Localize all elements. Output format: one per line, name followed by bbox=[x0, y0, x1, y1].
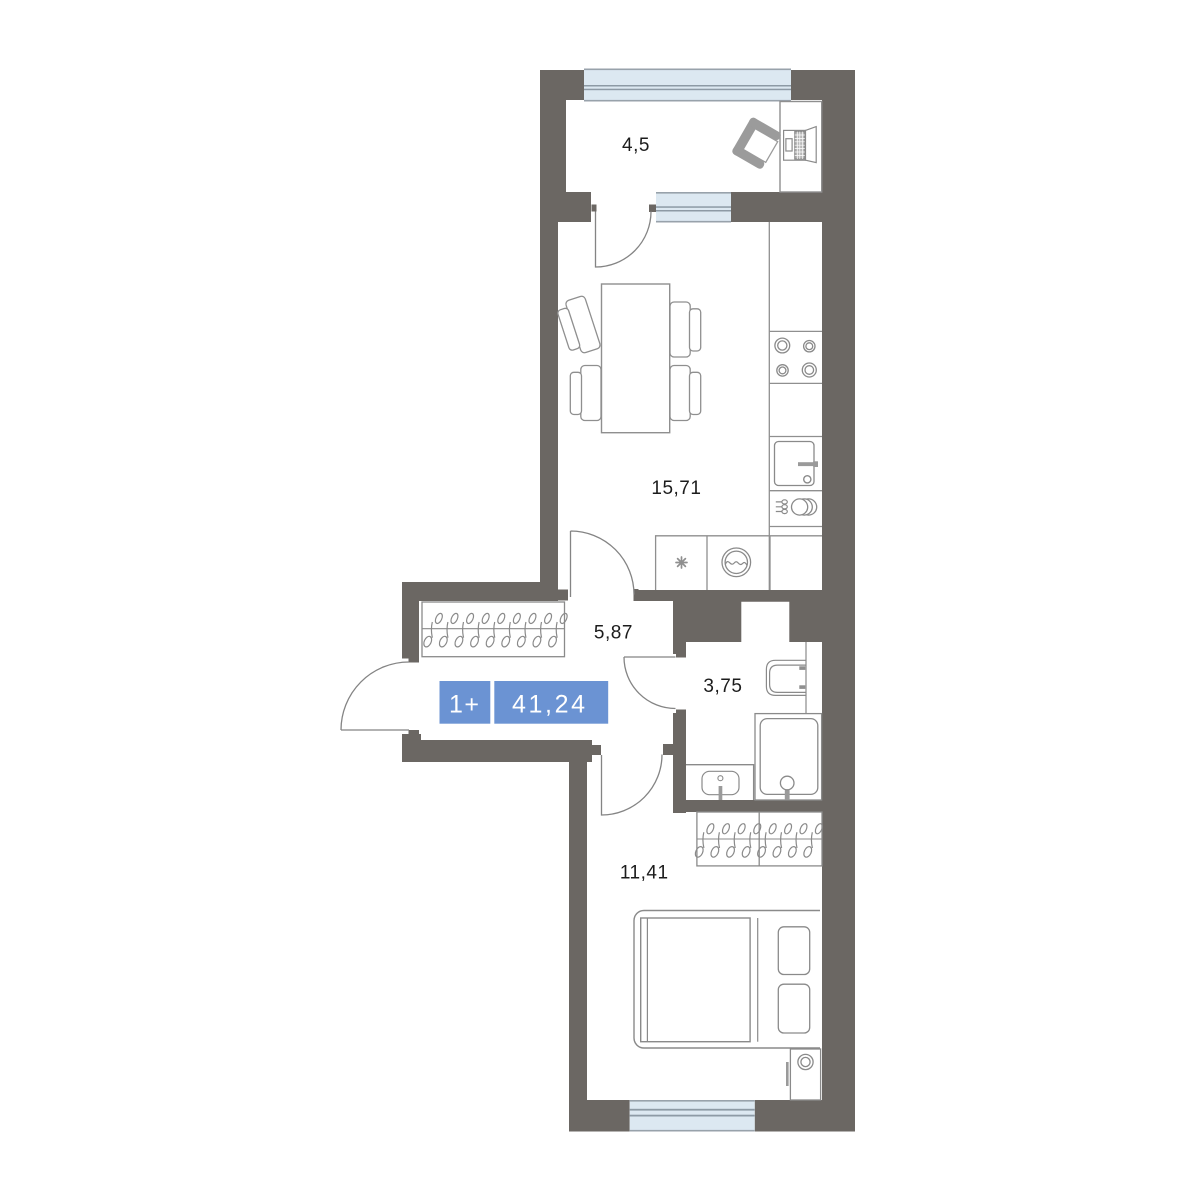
svg-text:4,5: 4,5 bbox=[622, 135, 650, 156]
svg-text:1+: 1+ bbox=[449, 691, 481, 719]
svg-text:3,75: 3,75 bbox=[703, 676, 742, 697]
svg-text:15,71: 15,71 bbox=[651, 478, 701, 499]
svg-text:41,24: 41,24 bbox=[512, 691, 588, 719]
svg-text:11,41: 11,41 bbox=[620, 863, 669, 884]
svg-text:5,87: 5,87 bbox=[594, 623, 633, 644]
